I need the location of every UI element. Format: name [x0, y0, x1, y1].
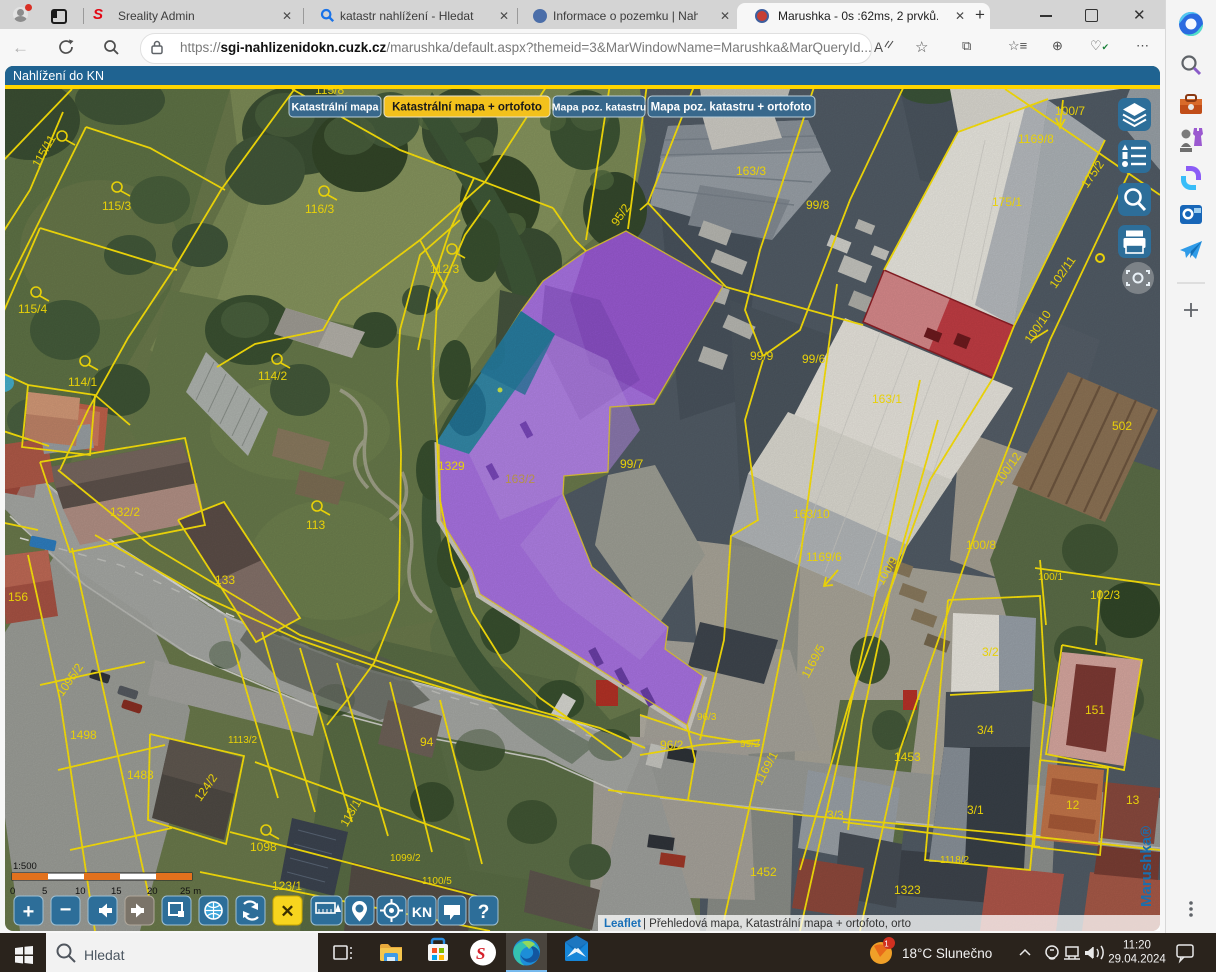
svg-text:| Přehledová mapa, Katastrální: | Přehledová mapa, Katastrální mapa + or…: [643, 918, 911, 930]
svg-text:1:500: 1:500: [13, 861, 37, 872]
svg-text:15: 15: [111, 886, 122, 897]
svg-text:11:20: 11:20: [1123, 940, 1151, 952]
svg-text:5: 5: [42, 886, 47, 897]
svg-text:10: 10: [75, 886, 86, 897]
svg-text:Leaflet: Leaflet: [604, 918, 641, 930]
svg-text:Nahlížení do KN: Nahlížení do KN: [13, 69, 104, 83]
svg-text:−: −: [60, 899, 72, 921]
svg-text:Katastrální mapa: Katastrální mapa: [291, 102, 379, 114]
svg-text:25 m: 25 m: [180, 886, 201, 897]
svg-text:Katastrální mapa + ortofoto: Katastrální mapa + ortofoto: [392, 102, 542, 114]
svg-text:Marushka®: Marushka®: [1138, 826, 1155, 907]
svg-text:18°C Slunečno: 18°C Slunečno: [902, 946, 992, 961]
svg-text:29.04.2024: 29.04.2024: [1108, 954, 1166, 966]
svg-text:20: 20: [147, 886, 158, 897]
svg-text:Mapa poz. katastru + ortofoto: Mapa poz. katastru + ortofoto: [651, 102, 812, 114]
svg-text:1: 1: [884, 940, 889, 949]
svg-text:Mapa poz. katastru: Mapa poz. katastru: [552, 102, 647, 114]
svg-text:+: +: [23, 901, 35, 923]
svg-text:?: ?: [478, 902, 490, 923]
svg-text:S: S: [476, 944, 485, 963]
svg-text:✕: ✕: [280, 902, 294, 921]
svg-text:KN: KN: [412, 904, 432, 920]
svg-text:Hledat: Hledat: [84, 947, 125, 963]
svg-text:0: 0: [10, 886, 15, 897]
